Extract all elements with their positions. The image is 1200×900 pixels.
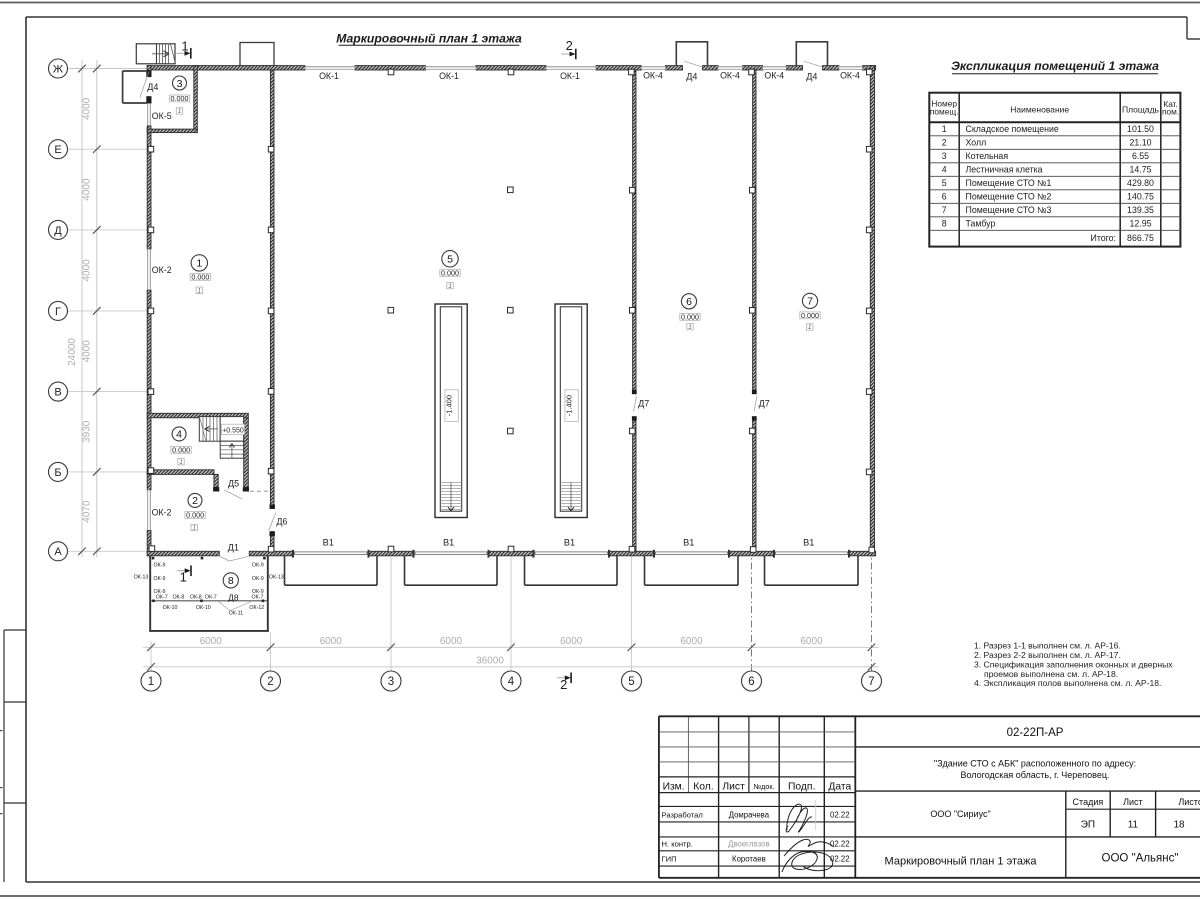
svg-text:1: 1 (196, 258, 202, 270)
svg-text:ОК-9: ОК-9 (154, 562, 166, 568)
svg-text:3: 3 (388, 676, 394, 688)
svg-text:2: 2 (267, 676, 273, 688)
svg-text:Стадия: Стадия (1073, 797, 1104, 807)
svg-text:1: 1 (688, 325, 691, 331)
svg-text:Д4: Д4 (806, 71, 817, 81)
svg-text:1: 1 (178, 109, 181, 115)
svg-text:ОК-13: ОК-13 (269, 575, 284, 581)
svg-text:6: 6 (748, 676, 754, 688)
svg-text:5: 5 (628, 676, 634, 688)
svg-text:Ж: Ж (53, 63, 63, 75)
svg-text:ОК-9: ОК-9 (154, 576, 166, 582)
svg-text:Е: Е (54, 144, 61, 156)
svg-text:В1: В1 (323, 538, 334, 548)
svg-text:ОК-2: ОК-2 (152, 265, 172, 275)
svg-text:Разработал: Разработал (662, 810, 703, 819)
svg-text:ОК-7: ОК-7 (205, 595, 217, 601)
svg-text:ОК-1: ОК-1 (319, 71, 339, 81)
svg-text:Кол.: Кол. (693, 781, 713, 792)
svg-text:Складское помещение: Складское помещение (966, 124, 1059, 134)
svg-text:3: 3 (942, 151, 947, 161)
svg-text:ООО "Сириус": ООО "Сириус" (930, 809, 990, 819)
svg-text:Дата: Дата (828, 781, 851, 792)
svg-text:429.80: 429.80 (1127, 178, 1154, 188)
svg-text:Маркировочный план 1 этажа: Маркировочный план 1 этажа (885, 855, 1038, 867)
svg-text:5: 5 (447, 254, 453, 266)
svg-text:7: 7 (868, 676, 874, 688)
svg-text:18: 18 (1173, 820, 1185, 831)
svg-text:24000: 24000 (67, 338, 78, 366)
svg-text:6000: 6000 (200, 636, 223, 647)
svg-text:6: 6 (942, 192, 947, 202)
svg-text:21.10: 21.10 (1129, 138, 1151, 148)
svg-text:Д7: Д7 (638, 398, 649, 408)
svg-text:ОК-5: ОК-5 (152, 111, 172, 121)
svg-text:6000: 6000 (440, 636, 463, 647)
svg-text:Площадь: Площадь (1122, 105, 1160, 115)
svg-text:-1.400: -1.400 (445, 395, 454, 416)
svg-text:Лист: Лист (722, 781, 745, 792)
svg-text:1: 1 (193, 526, 196, 532)
svg-text:1: 1 (448, 284, 451, 290)
svg-text:ОК-1: ОК-1 (439, 71, 459, 81)
svg-text:Маркировочный план 1 этажа: Маркировочный план 1 этажа (336, 32, 522, 46)
svg-text:Н. контр.: Н. контр. (662, 840, 693, 849)
svg-text:1: 1 (942, 124, 947, 134)
svg-text:ОК-13: ОК-13 (134, 575, 149, 581)
svg-text:-1.400: -1.400 (565, 395, 574, 416)
svg-text:Тамбур: Тамбур (966, 219, 996, 229)
svg-text:7: 7 (807, 296, 813, 308)
svg-text:№док.: №док. (753, 782, 774, 791)
svg-text:пом.: пом. (1162, 107, 1179, 117)
svg-text:ОК-8: ОК-8 (190, 595, 202, 601)
svg-text:В1: В1 (443, 538, 454, 548)
svg-text:ОК-4: ОК-4 (643, 71, 663, 81)
svg-text:ОК-4: ОК-4 (720, 71, 740, 81)
svg-text:11: 11 (1128, 820, 1139, 831)
svg-text:4000: 4000 (82, 97, 93, 120)
svg-text:ОК-1: ОК-1 (560, 71, 580, 81)
svg-text:0.000: 0.000 (801, 311, 819, 320)
svg-text:6000: 6000 (680, 636, 703, 647)
svg-text:3930: 3930 (82, 420, 93, 443)
svg-text:3: 3 (177, 78, 183, 90)
svg-text:В1: В1 (803, 538, 814, 548)
svg-text:Наименование: Наименование (1010, 105, 1069, 115)
svg-text:А: А (54, 546, 62, 558)
svg-text:8: 8 (942, 219, 947, 229)
svg-text:02.22: 02.22 (830, 810, 850, 819)
svg-text:ОК-12: ОК-12 (249, 605, 264, 611)
svg-text:Изм.: Изм. (663, 781, 685, 792)
svg-text:Вологодская область, г. Черепо: Вологодская область, г. Череповец. (960, 770, 1109, 780)
svg-text:Д4: Д4 (147, 82, 158, 92)
svg-text:139.35: 139.35 (1127, 205, 1154, 215)
svg-text:ОК-7: ОК-7 (156, 595, 168, 601)
svg-text:Помещение СТО №1: Помещение СТО №1 (966, 178, 1052, 188)
svg-text:ОК-10: ОК-10 (196, 605, 211, 611)
svg-text:ООО "Альянс": ООО "Альянс" (1102, 853, 1179, 865)
svg-text:1: 1 (198, 289, 201, 295)
svg-text:Двоеглазов: Двоеглазов (728, 840, 769, 849)
svg-text:4000: 4000 (82, 340, 93, 363)
svg-text:4: 4 (942, 165, 947, 175)
svg-text:Домрачева: Домрачева (729, 810, 770, 819)
svg-text:Итого:: Итого: (1091, 233, 1117, 243)
svg-text:4: 4 (176, 429, 182, 441)
svg-text:14.75: 14.75 (1129, 165, 1151, 175)
svg-text:Лестничная клетка: Лестничная клетка (966, 165, 1043, 175)
svg-text:4070: 4070 (82, 500, 93, 523)
svg-text:Помещение СТО №2: Помещение СТО №2 (966, 192, 1052, 202)
svg-text:Б: Б (54, 467, 61, 479)
svg-text:2: 2 (566, 38, 573, 53)
svg-text:5: 5 (942, 178, 947, 188)
svg-text:ОК-9: ОК-9 (252, 576, 264, 582)
svg-text:ОК-2: ОК-2 (152, 507, 172, 517)
svg-text:4000: 4000 (82, 178, 93, 201)
svg-text:Д1: Д1 (228, 542, 239, 552)
svg-text:Котельная: Котельная (966, 151, 1009, 161)
svg-text:+0.550: +0.550 (222, 428, 244, 435)
svg-text:4. Экспликация полов выполнена: 4. Экспликация полов выполнена см. л. АР… (974, 678, 1161, 688)
svg-text:1: 1 (179, 460, 182, 466)
svg-text:Д: Д (54, 225, 62, 237)
svg-text:866.75: 866.75 (1127, 233, 1154, 243)
svg-text:1: 1 (148, 676, 154, 688)
svg-text:7: 7 (942, 205, 947, 215)
svg-text:02.22: 02.22 (830, 840, 850, 849)
svg-text:Д7: Д7 (759, 398, 770, 408)
svg-text:Г: Г (55, 306, 61, 318)
svg-text:Листов: Листов (1178, 797, 1200, 807)
svg-text:0.000: 0.000 (186, 511, 204, 520)
svg-text:Д4: Д4 (686, 71, 697, 81)
svg-text:ОК-11: ОК-11 (229, 610, 244, 616)
svg-text:Коротаев: Коротаев (732, 854, 766, 863)
svg-text:0.000: 0.000 (441, 269, 459, 278)
svg-text:0.000: 0.000 (681, 312, 699, 321)
svg-text:6000: 6000 (800, 636, 823, 647)
svg-text:Подп.: Подп. (788, 781, 815, 792)
svg-text:Лист: Лист (1123, 797, 1143, 807)
svg-text:6: 6 (686, 296, 692, 308)
svg-text:0.000: 0.000 (191, 273, 209, 282)
svg-text:12.95: 12.95 (1129, 219, 1151, 229)
svg-text:6000: 6000 (560, 636, 583, 647)
svg-text:ОК-10: ОК-10 (163, 605, 178, 611)
svg-text:ЭП: ЭП (1081, 820, 1095, 831)
svg-text:4000: 4000 (82, 259, 93, 282)
svg-text:2: 2 (192, 495, 198, 507)
svg-text:6.55: 6.55 (1132, 151, 1149, 161)
svg-text:Д8: Д8 (228, 592, 239, 602)
svg-text:ОК-7: ОК-7 (252, 595, 264, 601)
svg-text:"Здание СТО с АБК" расположенн: "Здание СТО с АБК" расположенного по адр… (934, 759, 1136, 769)
svg-text:101.50: 101.50 (1127, 124, 1154, 134)
svg-text:ОК-8: ОК-8 (172, 595, 184, 601)
svg-text:Помещение СТО №3: Помещение СТО №3 (966, 205, 1052, 215)
svg-text:02-22П-АР: 02-22П-АР (1007, 727, 1064, 739)
svg-text:2: 2 (942, 138, 947, 148)
svg-text:6000: 6000 (320, 636, 343, 647)
svg-text:4: 4 (508, 676, 515, 688)
svg-text:1: 1 (808, 325, 811, 331)
svg-text:В1: В1 (564, 538, 575, 548)
svg-text:0.000: 0.000 (171, 94, 189, 103)
svg-text:140.75: 140.75 (1127, 192, 1154, 202)
svg-text:ОК-4: ОК-4 (840, 71, 860, 81)
svg-text:ГИП: ГИП (662, 854, 677, 863)
svg-text:ОК-9: ОК-9 (252, 562, 264, 568)
svg-text:ОК-4: ОК-4 (764, 71, 784, 81)
svg-text:Экспликация помещений 1 этажа: Экспликация помещений 1 этажа (951, 59, 1159, 73)
svg-text:Д5: Д5 (228, 479, 239, 489)
svg-text:Холл: Холл (966, 138, 987, 148)
svg-text:В1: В1 (683, 538, 694, 548)
svg-text:Д6: Д6 (276, 517, 287, 527)
svg-text:0.000: 0.000 (172, 446, 190, 455)
svg-text:помещ.: помещ. (930, 106, 959, 116)
svg-text:8: 8 (228, 575, 234, 587)
svg-text:36000: 36000 (476, 656, 504, 667)
svg-text:В: В (54, 387, 61, 399)
